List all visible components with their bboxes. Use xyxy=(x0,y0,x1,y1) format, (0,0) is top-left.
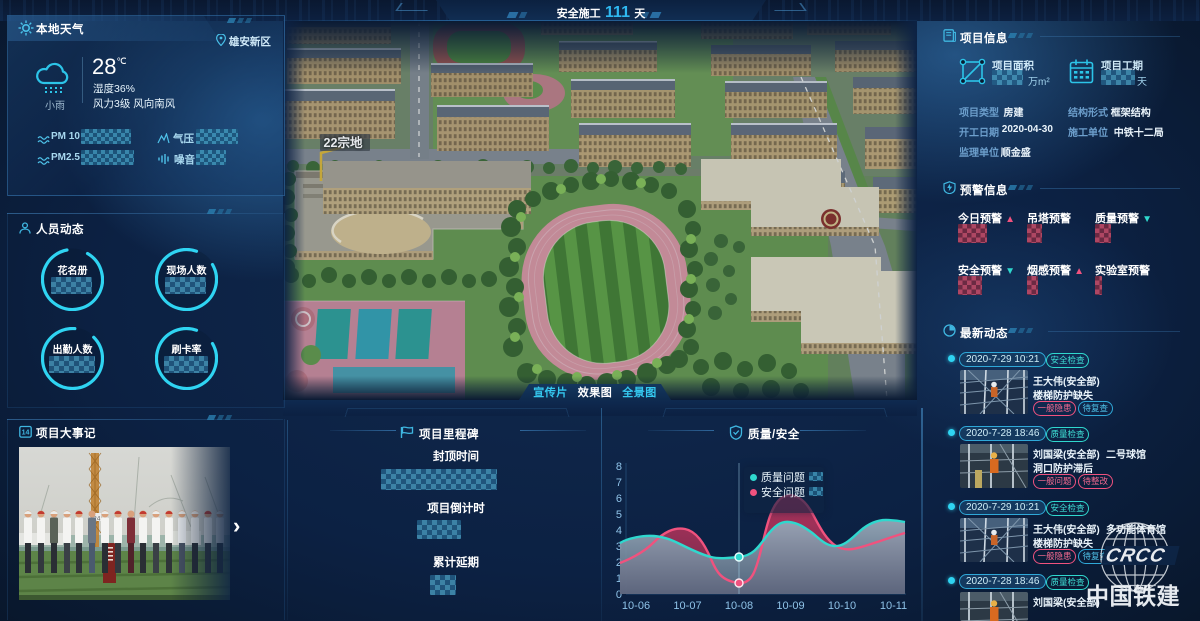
svg-text:CRCC: CRCC xyxy=(1103,546,1167,567)
svg-text:7: 7 xyxy=(616,477,622,489)
svg-text:10-09: 10-09 xyxy=(776,600,804,612)
svg-text:14: 14 xyxy=(22,430,30,437)
svg-text:10-07: 10-07 xyxy=(673,600,701,612)
svg-text:6: 6 xyxy=(616,493,622,505)
svg-text:10-11: 10-11 xyxy=(880,600,907,612)
svg-text:10-08: 10-08 xyxy=(725,600,753,612)
svg-text:4: 4 xyxy=(616,525,622,537)
svg-text:10-06: 10-06 xyxy=(622,600,650,612)
svg-text:5: 5 xyxy=(616,509,622,521)
svg-text:8: 8 xyxy=(616,461,622,473)
svg-text:10-10: 10-10 xyxy=(828,600,856,612)
